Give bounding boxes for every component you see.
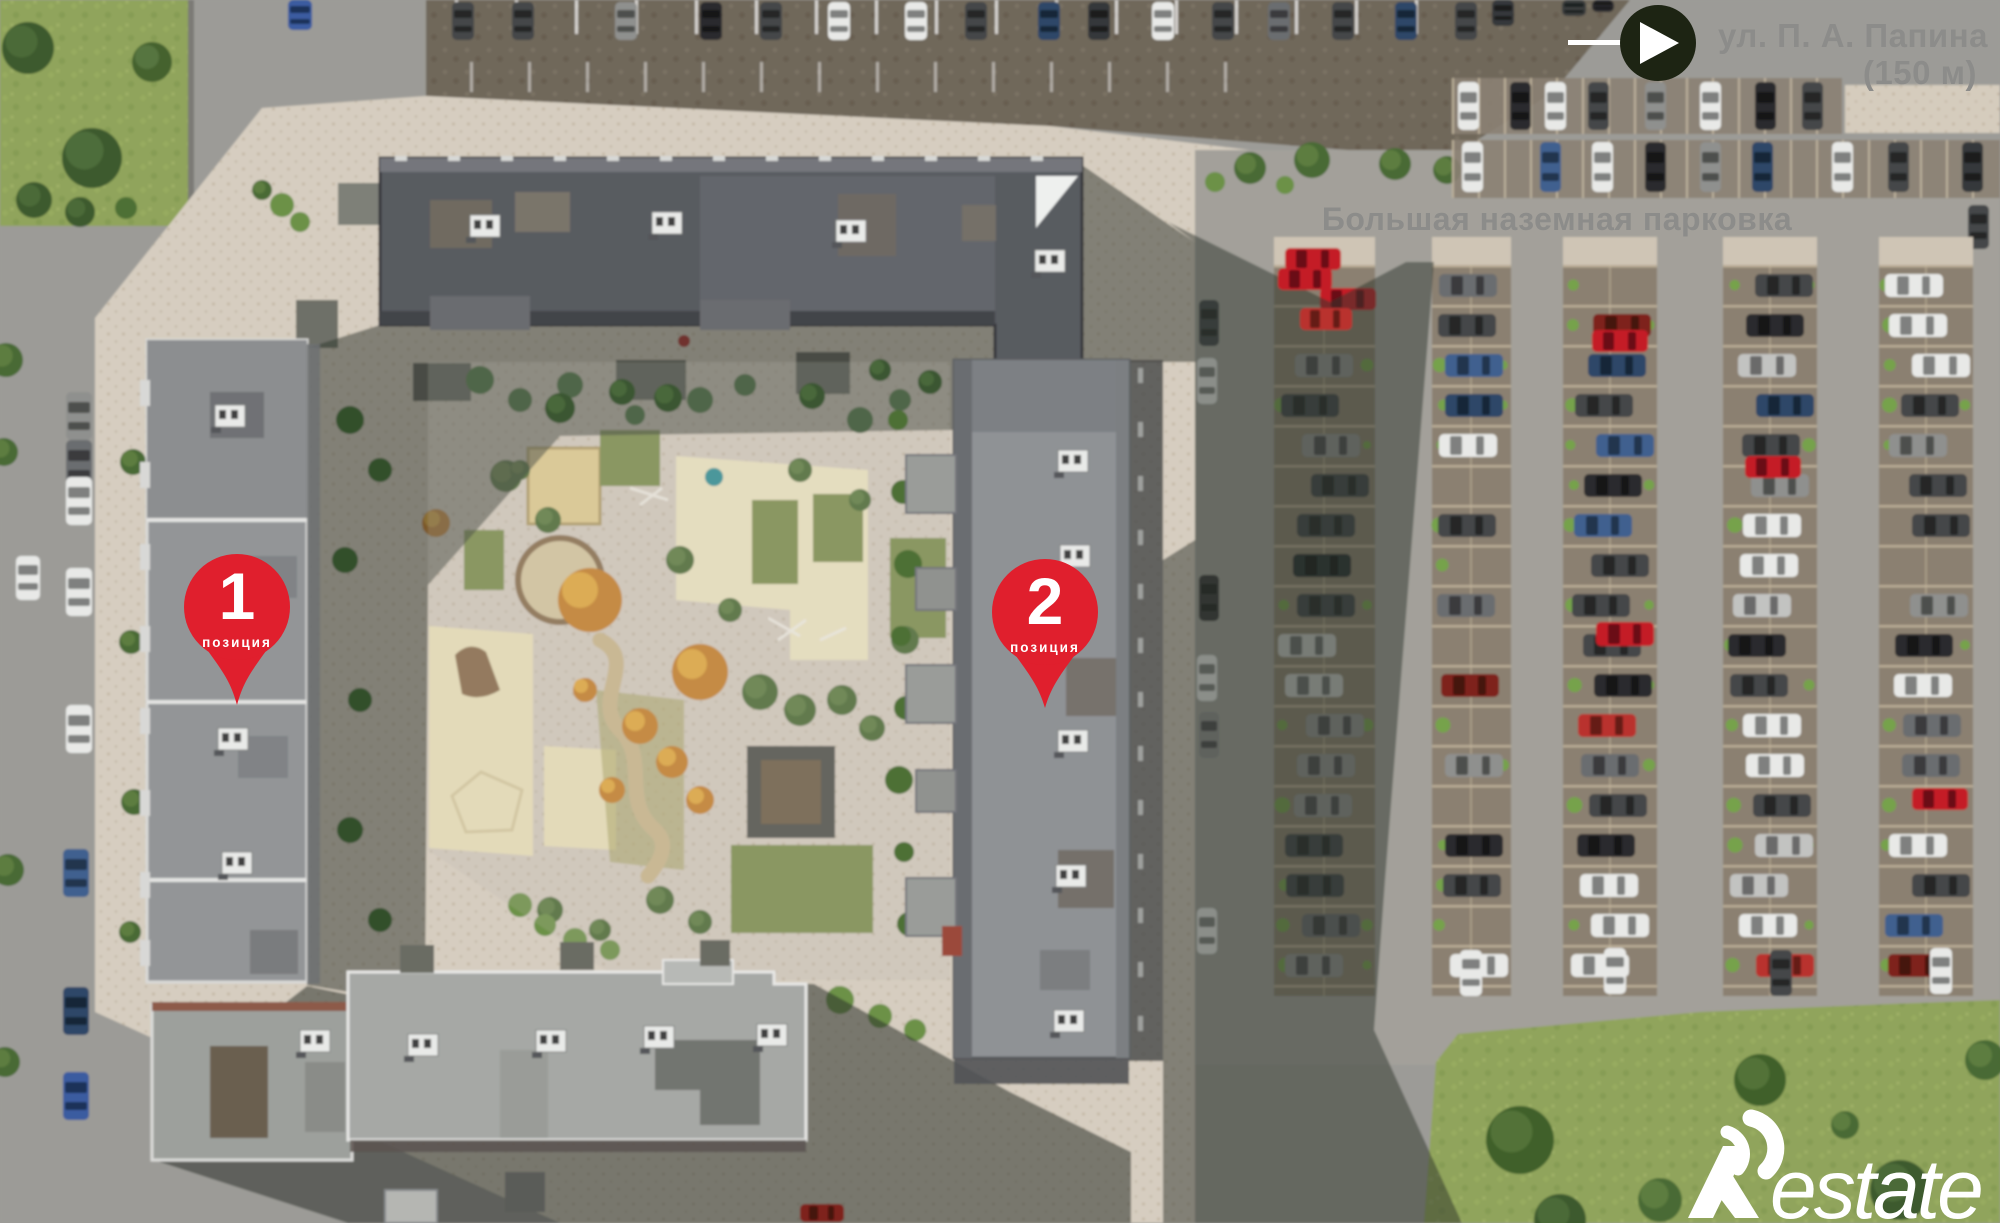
svg-text:позиция: позиция — [1010, 640, 1080, 655]
svg-text:2: 2 — [1027, 564, 1064, 638]
svg-text:(150 м): (150 м) — [1863, 54, 1977, 91]
svg-text:ул. П. А. Папина: ул. П. А. Папина — [1718, 17, 1988, 54]
svg-text:позиция: позиция — [202, 635, 272, 650]
svg-text:1: 1 — [219, 559, 256, 633]
svg-text:Большая наземная парковка: Большая наземная парковка — [1322, 201, 1792, 237]
svg-text:estate: estate — [1770, 1142, 1981, 1223]
